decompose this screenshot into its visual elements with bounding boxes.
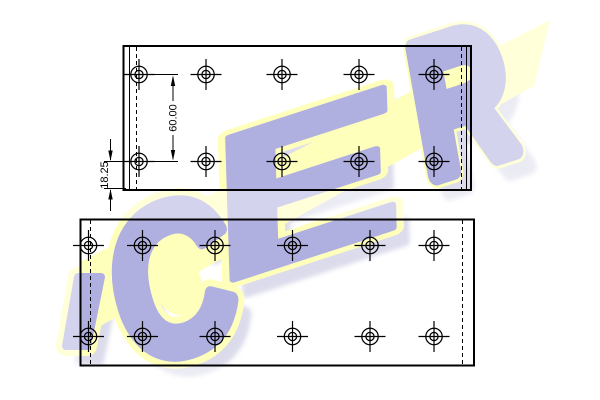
svg-text:18.25: 18.25: [99, 161, 111, 189]
svg-text:60.00: 60.00: [168, 104, 180, 132]
